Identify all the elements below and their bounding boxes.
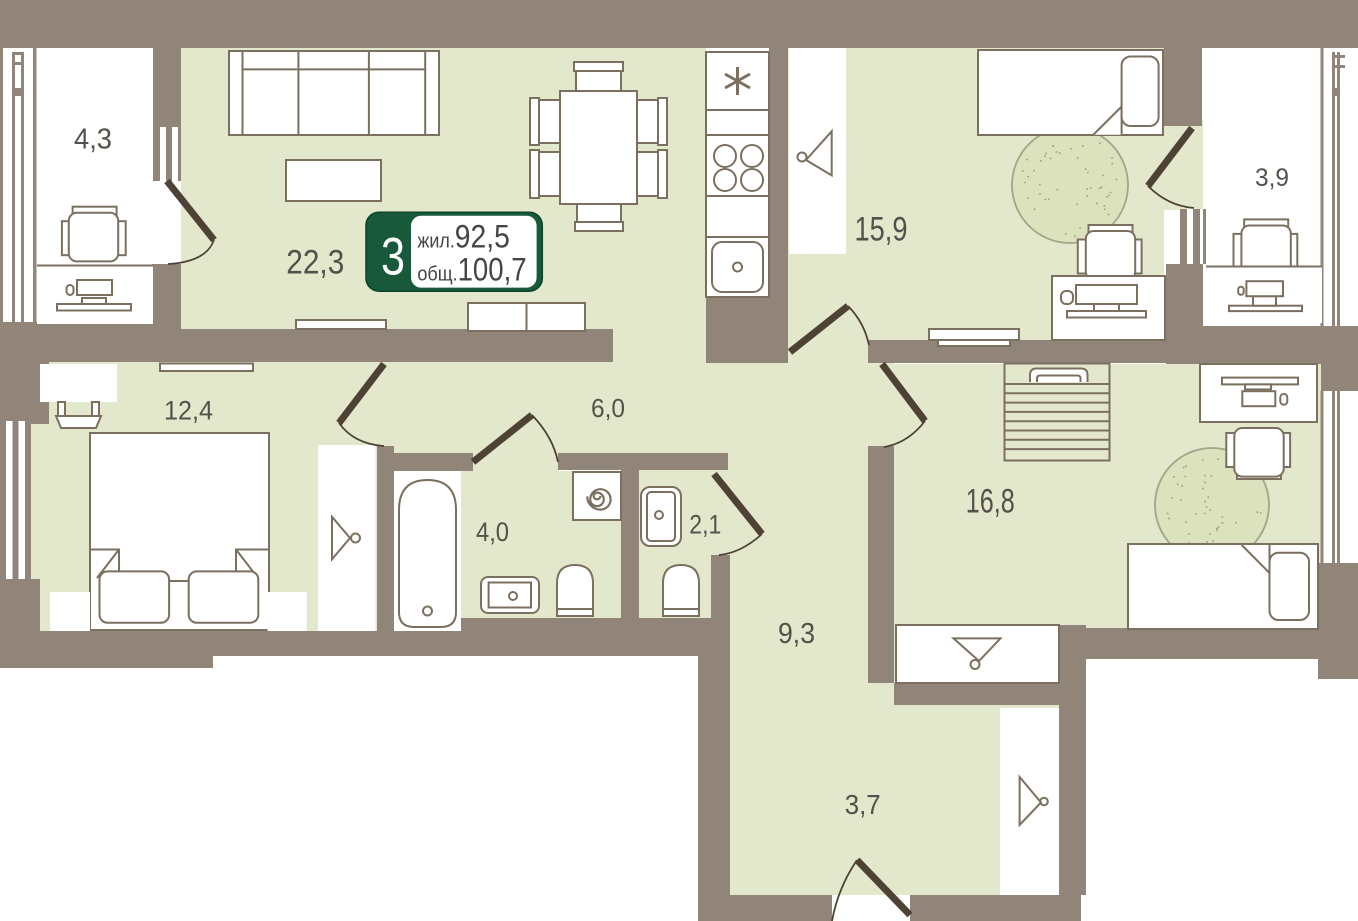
- svg-text:6,0: 6,0: [591, 395, 625, 423]
- svg-text:2,1: 2,1: [689, 510, 721, 540]
- svg-text:3,9: 3,9: [1255, 164, 1289, 192]
- svg-text:15,9: 15,9: [855, 210, 908, 248]
- svg-text:4,3: 4,3: [74, 124, 112, 156]
- svg-text:4,0: 4,0: [476, 517, 509, 547]
- svg-text:3: 3: [381, 228, 405, 287]
- svg-text:12,4: 12,4: [164, 395, 213, 425]
- svg-text:3,7: 3,7: [845, 789, 881, 820]
- svg-text:16,8: 16,8: [966, 483, 1015, 521]
- svg-text:22,3: 22,3: [286, 243, 344, 281]
- svg-text:9,3: 9,3: [778, 618, 815, 650]
